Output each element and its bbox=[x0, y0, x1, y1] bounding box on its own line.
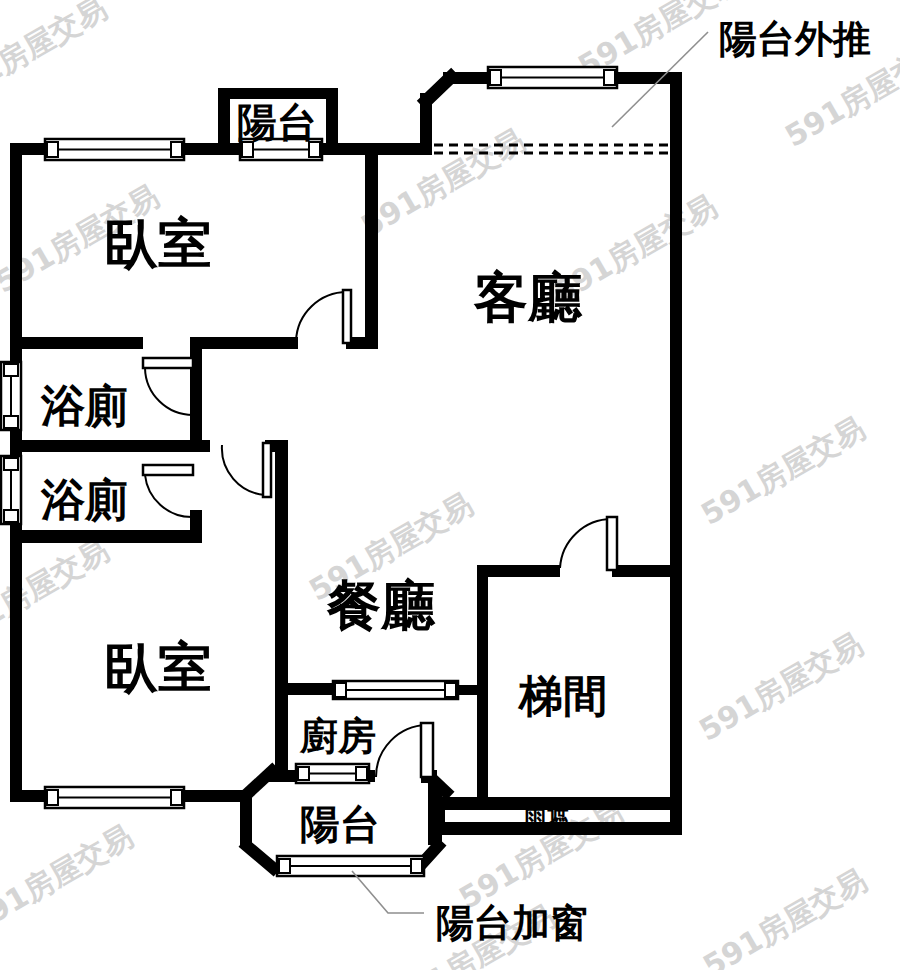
leader-balcony-added-window bbox=[352, 871, 424, 913]
annotation-balcony-pushed-out: 陽台外推 bbox=[719, 17, 871, 61]
label-rain-shelter: 雨遮 bbox=[523, 802, 570, 828]
wall-kitchen-top-a bbox=[288, 683, 333, 695]
window-bathroom2-left bbox=[1, 456, 21, 524]
floor-plan-canvas: 591房屋交易 591房屋交易 591房屋交易 591房屋交易 591房屋交易 … bbox=[0, 0, 900, 970]
label-stairwell: 梯間 bbox=[517, 670, 607, 721]
label-bedroom-bottom: 臥室 bbox=[104, 636, 212, 699]
door-bedroom2-hall bbox=[222, 443, 271, 497]
watermark: 591房屋交易 bbox=[0, 0, 113, 112]
window-balcony-bottom bbox=[277, 856, 424, 876]
watermark: 591房屋交易 bbox=[695, 410, 871, 532]
wall-exterior-right bbox=[670, 72, 682, 835]
window-bedroom1-top bbox=[45, 139, 184, 160]
watermark: 591房屋交易 bbox=[693, 626, 869, 748]
wall-kitchen-top-b bbox=[458, 685, 478, 695]
window-kitchen-top bbox=[333, 681, 458, 699]
wall-stairwell-top-a bbox=[477, 565, 560, 577]
wall-stairwell-top-b bbox=[612, 565, 670, 577]
label-balcony-bottom: 陽台 bbox=[300, 801, 380, 847]
label-living-room: 客廳 bbox=[473, 266, 583, 329]
door-bathroom2 bbox=[143, 465, 193, 517]
wall-bathrooms-divider bbox=[10, 440, 210, 452]
wall-balcony-top-right bbox=[326, 88, 338, 148]
window-kitchen-balcony bbox=[296, 764, 369, 783]
door-stairwell bbox=[560, 517, 617, 570]
room-labels: 臥室 客廳 浴廁 浴廁 臥室 餐廳 廚房 梯間 陽台 陽台 雨遮 bbox=[40, 99, 607, 847]
label-bathroom-top: 浴廁 bbox=[40, 380, 129, 431]
wall-bedroom1-bottom-b bbox=[190, 337, 298, 349]
wall-stairwell-left bbox=[477, 565, 488, 797]
wall-bedroom2-right bbox=[275, 440, 288, 782]
wall-balcony2-top-a bbox=[267, 770, 298, 782]
window-bathroom1-left bbox=[1, 362, 21, 430]
watermark: 591房屋交易 bbox=[697, 862, 873, 970]
label-bedroom-top: 臥室 bbox=[104, 212, 212, 275]
label-kitchen: 廚房 bbox=[299, 714, 376, 758]
wall-balcony2-chamfer-bl bbox=[247, 846, 273, 868]
door-bathroom1 bbox=[143, 358, 193, 415]
door-bedroom1 bbox=[296, 290, 351, 343]
floor-plan-svg: 591房屋交易 591房屋交易 591房屋交易 591房屋交易 591房屋交易 … bbox=[0, 0, 900, 970]
watermark: 591房屋交易 bbox=[0, 818, 139, 940]
label-dining-room: 餐廳 bbox=[326, 574, 436, 637]
wall-bathroom1-right bbox=[190, 337, 202, 452]
label-bathroom-bottom: 浴廁 bbox=[40, 474, 129, 525]
wall-bedroom1-right bbox=[365, 143, 378, 349]
watermark: 591房屋交易 bbox=[355, 122, 531, 244]
wall-bedroom1-bottom-a bbox=[10, 337, 143, 349]
window-living-top bbox=[488, 67, 617, 88]
wall-rain-shelter-left bbox=[435, 797, 445, 835]
window-bedroom2-bottom bbox=[45, 787, 184, 808]
door-kitchen-balcony bbox=[376, 723, 433, 777]
annotation-balcony-added-window: 陽台加窗 bbox=[436, 901, 588, 945]
wall-bathroom2-bottom bbox=[10, 530, 202, 543]
wall-balcony-top-top bbox=[218, 88, 338, 99]
label-balcony-top: 陽台 bbox=[237, 99, 317, 145]
